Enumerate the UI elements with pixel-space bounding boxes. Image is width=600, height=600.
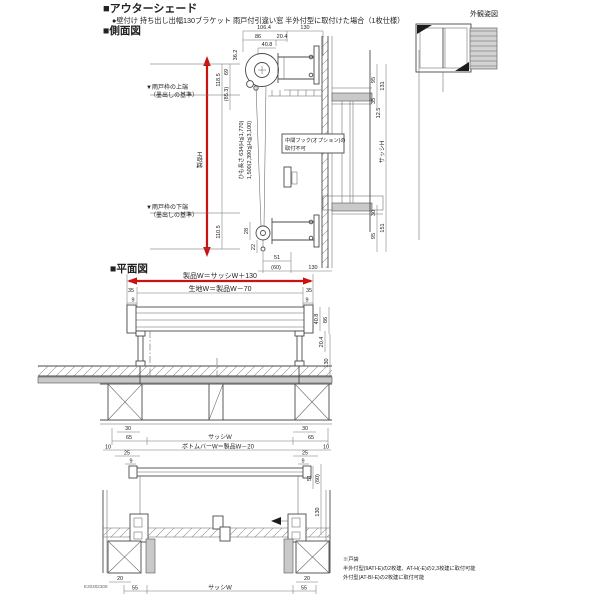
side-right-dimensions: 95 131 35 12.5 サッシH 30 151 95 (371, 64, 386, 252)
hook-note-line2: 取付不可 (285, 144, 306, 152)
hook-note-box: 中間フック(オプション)の 取付不可 (282, 134, 346, 153)
dim-12-5: 12.5 (376, 108, 382, 119)
appearance-figure: 外観姿図 (416, 9, 498, 92)
plan-view: 製品W＝サッシW＋130 生地W＝製品W－70 35 35 9 9 40.8 8… (38, 271, 332, 594)
datum-bottom-note: （墨出しの基準） (150, 211, 198, 219)
dim-35-left: 35 (128, 288, 134, 294)
dim-20-right: 20 (304, 576, 310, 582)
note-line-1: ※戸袋 (343, 555, 359, 563)
dim-10-right: 10 (323, 445, 329, 451)
dim-36-2: 36.2 (233, 50, 239, 61)
plan-dim-51: 51 (307, 475, 313, 481)
dim-55-left: 55 (132, 586, 138, 592)
dim-106-4: 106.4 (257, 25, 271, 31)
plan-width-dimensions: 30 30 65 サッシW 65 10 ボトムバーW＝製品W－20 10 25 … (103, 426, 331, 465)
dim-35: 35 (371, 98, 377, 104)
direction-arrow (271, 517, 281, 525)
technical-drawing: ■アウターシェード ●壁付け 持ち出し出幅130ブラケット 雨戸付引違い窓 半外… (0, 0, 600, 600)
dim-25-left: 25 (124, 451, 130, 457)
plan-bottom-dimensions: 20 20 55 サッシW 55 E20302308 (84, 576, 318, 594)
dim-131: 131 (380, 81, 386, 90)
product-w-label: 製品W＝サッシW＋130 (183, 271, 257, 280)
dim-25-right: 25 (302, 451, 308, 457)
dim-20-4: 20.4 (277, 34, 288, 40)
dim-20-left: 20 (117, 576, 123, 582)
hook-note-line1: 中間フック(オプション)の (285, 136, 346, 144)
dim-10-left: 10 (105, 445, 111, 451)
datum-bottom-label: ▼雨戸枠の下端 (146, 203, 188, 211)
datum-top-note: （墨出しの基準） (150, 91, 198, 99)
drawing-canvas: ■アウターシェード ●壁付け 持ち出し出幅130ブラケット 雨戸付引違い窓 半外… (0, 0, 600, 600)
dim-9b-right: 9 (301, 459, 304, 465)
dim-95-top: 95 (371, 77, 377, 83)
dim-40-8: 40.8 (262, 42, 273, 48)
dim-130-top: 130 (300, 25, 309, 31)
shade-housing-plan (127, 305, 313, 333)
dim-110-5: 110.5 (216, 225, 222, 238)
dim-9-right: 9 (305, 298, 308, 304)
plan-dim-40-8: 40.8 (314, 314, 320, 325)
bottom-bar-w-label: ボトムバーW＝製品W－20 (182, 443, 255, 451)
dim-22: 22 (251, 244, 257, 250)
plan-dim-60: (60) (315, 474, 321, 484)
dim-65-left: 65 (126, 435, 132, 441)
dim-55-right: 55 (301, 586, 307, 592)
roller-drum (246, 54, 279, 91)
dim-60: (60) (271, 265, 281, 271)
header: ■アウターシェード ●壁付け 持ち出し出幅130ブラケット 雨戸付引違い窓 半外… (103, 2, 404, 275)
dim-118-5: 118.5 (216, 73, 222, 86)
page-subtitle: ●壁付け 持ち出し出幅130ブラケット 雨戸付引違い窓 半外付型に取付けた場合（… (112, 16, 404, 25)
dim-86: 86 (255, 34, 261, 40)
product-h-label: 製品H (196, 152, 204, 168)
dim-51: 51 (274, 255, 280, 261)
shade-roll-hatch (470, 28, 497, 69)
dim-65-right: 65 (308, 435, 314, 441)
sash-w-mid-label: サッシW (208, 434, 232, 441)
dim-9b-left: 9 (129, 459, 132, 465)
window-outline (416, 24, 471, 72)
datum-top-label: ▼雨戸枠の上端 (146, 83, 188, 91)
appearance-label: 外観姿図 (470, 9, 498, 18)
dim-35-right: 35 (306, 288, 312, 294)
sash-h-label: サッシH (379, 141, 386, 163)
cord-length-note-1: ひも長さ 634(H≦1,770) (238, 120, 245, 179)
side-view: 製品H ▼雨戸枠の上端 （墨出しの基準） ▼雨戸枠の下端 （墨出しの基準） 11… (146, 25, 419, 273)
cord-and-pulley (256, 86, 270, 251)
page-title: ■アウターシェード (103, 2, 197, 15)
dim-95-bottom: 95 (371, 233, 377, 239)
note-line-3: 外付型(AT-BI-E)の2枚建に取付可能 (343, 573, 424, 581)
note-line-2: 半外付型(9ATI-E)の2枚建、AT-H(-E)の2,3枚建に取付可能 (343, 564, 475, 572)
dim-9-left: 9 (131, 298, 134, 304)
plan-dim-20-4: 20.4 (319, 337, 325, 348)
plan-dim-86: 86 (323, 317, 329, 323)
top-bracket (278, 46, 319, 84)
sash-w-bottom-label: サッシW (208, 585, 232, 592)
dim-151: 151 (380, 223, 386, 232)
dim-69: 69 (224, 69, 230, 75)
side-view-section-label: ■側面図 (103, 24, 141, 37)
product-height-dimension: 製品H (196, 56, 211, 257)
plan-wall-band (38, 366, 332, 383)
dim-130-bottom: 130 (308, 265, 317, 271)
lower-window-section (103, 490, 330, 573)
notes: ※戸袋 半外付型(9ATI-E)の2枚建、AT-H(-E)の2,3枚建に取付可能… (343, 555, 475, 581)
dim-30-right: 30 (302, 426, 308, 432)
dim-30-left: 30 (125, 426, 131, 432)
fabric-w-label: 生地W＝製品W－70 (189, 284, 252, 293)
drawing-code: E20302308 (84, 584, 108, 589)
bottom-bracket (272, 215, 319, 247)
side-top-dimensions: 106.4 130 86 20.4 40.8 (243, 25, 323, 56)
dim-28: 28 (244, 228, 250, 234)
plan-view-section-label: ■平面図 (110, 263, 148, 275)
cord-length-note-2: 1,500(2,390≦H≦3,100) (247, 121, 253, 179)
plan-dim-130b: 130 (315, 507, 321, 516)
dim-85-3: (85.3) (224, 87, 230, 102)
dim-30: 30 (371, 210, 377, 216)
